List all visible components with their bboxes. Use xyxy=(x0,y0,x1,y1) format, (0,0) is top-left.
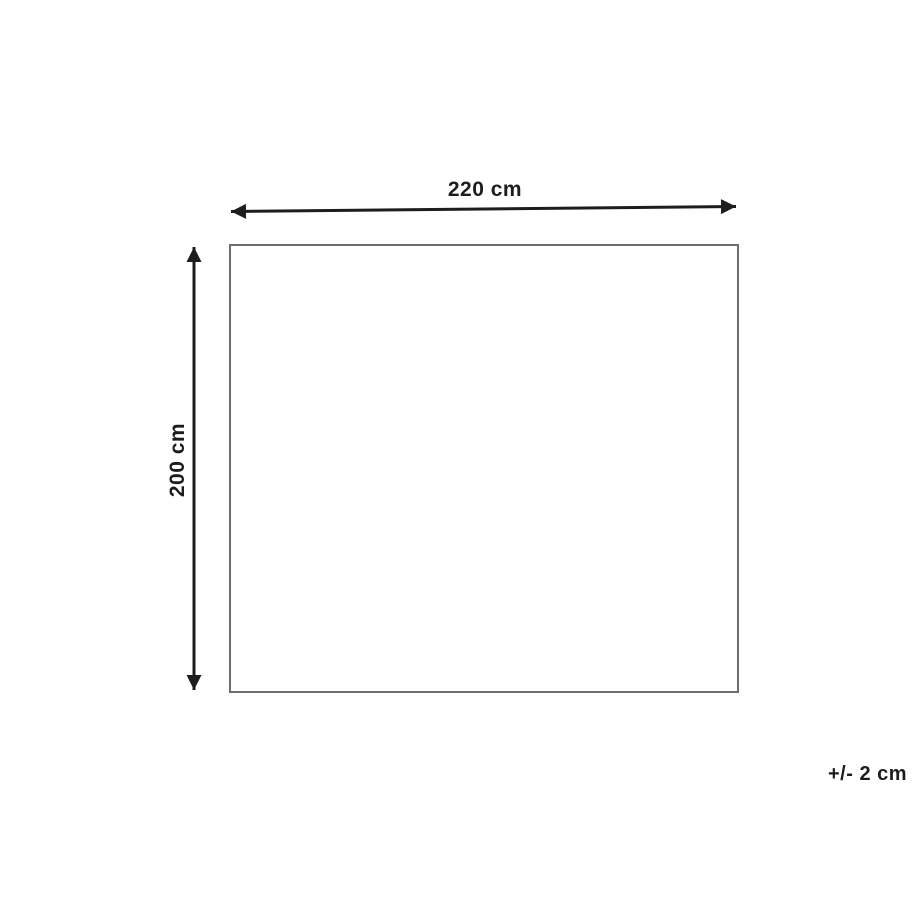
tolerance-label: +/- 2 cm xyxy=(828,763,907,786)
product-outline xyxy=(229,244,739,693)
dimension-diagram: 220 cm 200 cm +/- 2 cm xyxy=(0,0,920,920)
width-dimension-label: 220 cm xyxy=(230,178,740,202)
height-dimension-label: 200 cm xyxy=(166,400,190,520)
width-arrow xyxy=(231,207,736,212)
